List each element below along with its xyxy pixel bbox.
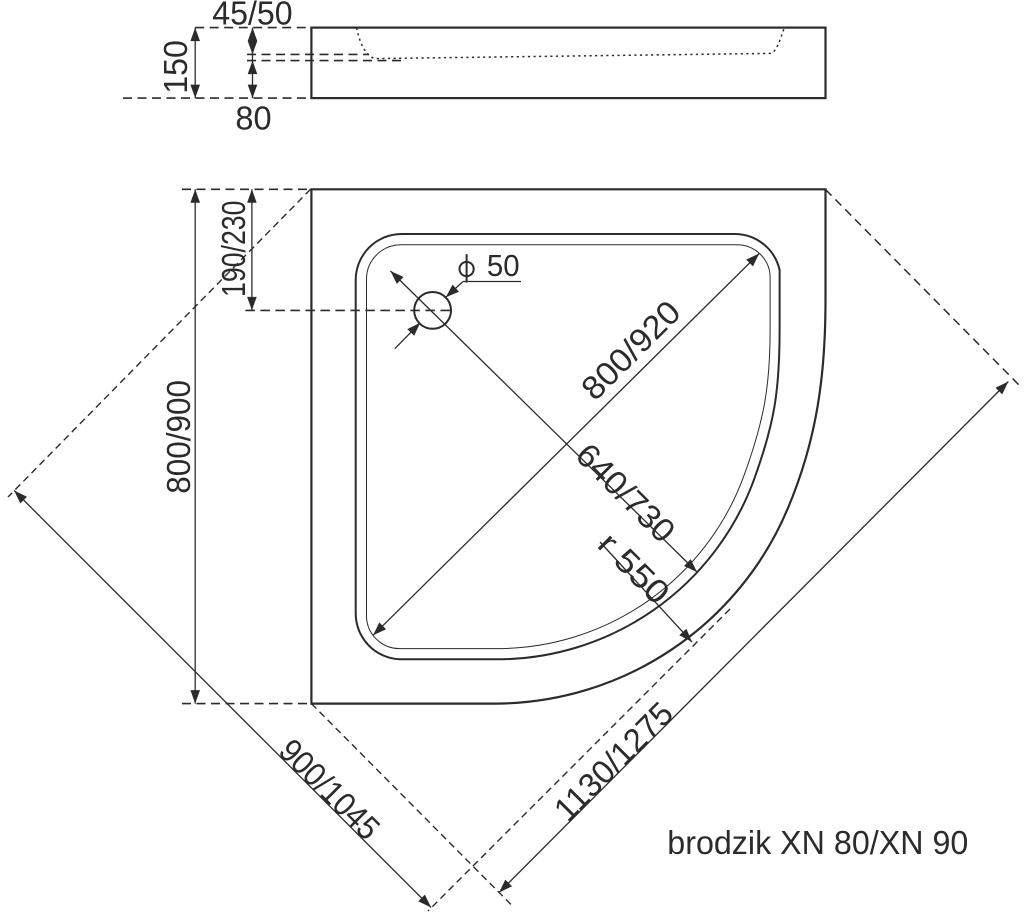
svg-text:1130/1275: 1130/1275 (547, 695, 681, 829)
svg-text:150: 150 (157, 40, 194, 94)
svg-text:50: 50 (487, 248, 520, 283)
svg-text:800/900: 800/900 (160, 380, 197, 494)
svg-text:900/1045: 900/1045 (272, 732, 387, 847)
svg-text:brodzik XN 80/XN 90: brodzik XN 80/XN 90 (667, 824, 968, 861)
svg-text:80: 80 (235, 100, 271, 137)
svg-text:190/230: 190/230 (215, 201, 252, 298)
svg-text:45/50: 45/50 (212, 0, 292, 32)
svg-text:800/920: 800/920 (574, 293, 688, 407)
